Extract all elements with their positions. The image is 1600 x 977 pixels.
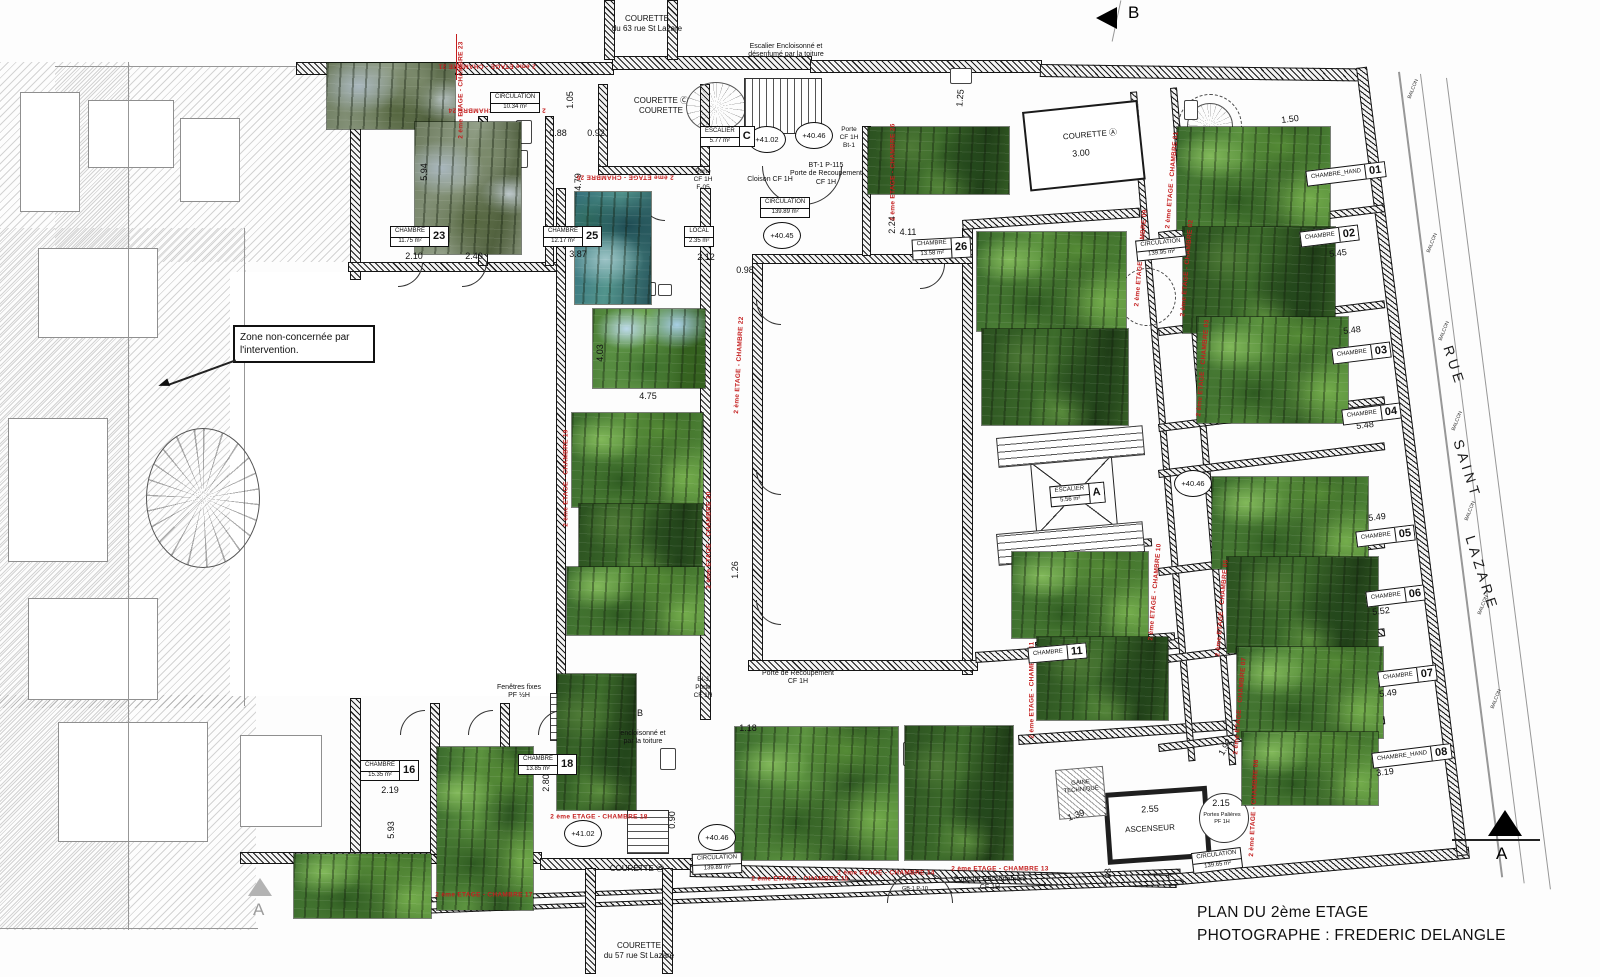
room-name: CIRCULATION bbox=[491, 93, 539, 103]
dimension-label: 5.93 bbox=[386, 821, 396, 839]
photo-caption: 2 ème ETAGE - CHAMBRE 21 bbox=[438, 63, 535, 70]
plan-label-line: Porte bbox=[694, 168, 713, 176]
section-arrow-b-icon bbox=[1096, 7, 1117, 29]
room-photo bbox=[327, 63, 455, 129]
room-photo bbox=[1212, 477, 1368, 569]
plan-label-line: Porte bbox=[694, 684, 713, 692]
room-photo bbox=[1012, 552, 1148, 638]
dimension-label: 2.80 bbox=[541, 774, 551, 792]
room-photo bbox=[593, 309, 705, 388]
dimension-label: 3.87 bbox=[569, 249, 587, 259]
room-name: ESCALIER bbox=[701, 127, 739, 137]
plan-label-line: CF 1H bbox=[694, 692, 713, 700]
plan-label-line: Porte de Recoupement bbox=[762, 670, 834, 678]
room-tag-text: CIRCULATION10.34 m² bbox=[491, 93, 539, 112]
room-tag-text: CIRCULATION139.89 m² bbox=[693, 853, 742, 873]
plan-label-line: Porte de Recoupement bbox=[790, 170, 862, 178]
plan-label-line: Porte de Recoupement bbox=[954, 876, 1026, 884]
room-tag-text: CHAMBRE15.35 m² bbox=[361, 761, 399, 780]
existing-room-outline bbox=[20, 92, 80, 212]
plan-label-line: COURETTE Ⓑ bbox=[610, 864, 664, 874]
room-name: LOCAL bbox=[685, 227, 713, 237]
level-marker: +40.45 bbox=[763, 222, 801, 249]
door-arc-icon bbox=[400, 710, 425, 735]
room-name: CHAMBRE_HAND bbox=[1307, 167, 1366, 184]
dimension-label: 2.12 bbox=[697, 252, 715, 262]
room-photo bbox=[982, 329, 1128, 425]
existing-building-line bbox=[0, 928, 258, 929]
room-photo bbox=[567, 567, 704, 635]
room-area: 139.89 m² bbox=[761, 208, 809, 217]
bathroom-fixture bbox=[1184, 100, 1198, 120]
plan-label: GB-1 P-10 bbox=[902, 886, 928, 893]
plan-label-line: COURETTE bbox=[612, 14, 682, 24]
wall-segment bbox=[348, 262, 564, 272]
room-tag: LOCAL2.35 m² bbox=[684, 226, 714, 247]
room-photo bbox=[1227, 557, 1378, 653]
room-name: CHAMBRE bbox=[519, 755, 557, 765]
room-tag-text: CHAMBRE bbox=[1342, 406, 1381, 425]
plan-label-line: Portes Palières bbox=[1203, 812, 1240, 819]
photo-caption: 2 ème ETAGE - CHAMBRE 20 bbox=[706, 491, 713, 588]
room-tag-text: CHAMBRE bbox=[1378, 668, 1417, 687]
plan-label-line: encloisonné et bbox=[620, 730, 665, 738]
room-number: 23 bbox=[429, 227, 448, 246]
street-name: RUE bbox=[1440, 344, 1468, 388]
plan-label-line: Escalier Encloisonné et bbox=[748, 43, 824, 51]
existing-room-outline bbox=[88, 100, 174, 168]
room-photo bbox=[575, 192, 651, 304]
dimension-label: 0.98 bbox=[736, 265, 754, 275]
existing-room-outline bbox=[38, 248, 158, 338]
existing-room-outline bbox=[240, 735, 322, 827]
room-photo bbox=[977, 232, 1126, 331]
plan-label-line: PF 1H bbox=[1203, 819, 1240, 826]
room-name: CHAMBRE bbox=[1343, 408, 1382, 422]
plan-label: Porte de RecoupementCF 1H bbox=[954, 876, 1026, 893]
existing-room-outline bbox=[8, 418, 108, 562]
room-tag-text: CHAMBRE bbox=[1332, 345, 1371, 364]
room-tag: CHAMBRE12.17 m²25 bbox=[543, 226, 602, 247]
room-tag: CHAMBRE11.75 m²23 bbox=[390, 226, 449, 247]
plan-label-line: PF ½H bbox=[497, 692, 541, 700]
room-number: 06 bbox=[1404, 586, 1425, 603]
corridor-circle bbox=[1118, 268, 1176, 326]
wall-segment bbox=[962, 208, 1140, 230]
room-tag-text: ESCALIER5.77 m² bbox=[701, 127, 739, 146]
plan-label-line: CF 1H bbox=[790, 179, 862, 187]
room-name: CHAMBRE bbox=[544, 227, 582, 237]
street-line bbox=[1446, 78, 1551, 889]
room-name: CHAMBRE bbox=[1357, 530, 1396, 544]
room-area: 2.35 m² bbox=[685, 237, 713, 246]
photo-caption: 2 ème ETAGE - CHAMBRE 10 bbox=[1147, 543, 1162, 641]
dimension-label: 1.03 bbox=[1103, 868, 1113, 886]
plan-label-line: CF 1H bbox=[840, 134, 859, 142]
room-number: 05 bbox=[1394, 526, 1415, 543]
room-number: 04 bbox=[1380, 404, 1401, 421]
plan-label-line: du 57 rue St Lazare bbox=[604, 951, 674, 961]
dimension-label: 5.48 bbox=[1343, 324, 1362, 336]
room-photo bbox=[579, 504, 702, 570]
room-number: 18 bbox=[557, 755, 576, 774]
plan-label-line: COURETTE Ⓒ bbox=[634, 96, 688, 106]
section-marker-a2: A bbox=[253, 900, 264, 920]
dimension-label: 1.50 bbox=[1281, 113, 1300, 125]
dimension-label: 4.03 bbox=[595, 344, 605, 362]
plan-label-line: CF 1H bbox=[762, 678, 834, 686]
room-tag: CHAMBRE_HAND08 bbox=[1371, 743, 1452, 769]
plan-label-line: GB-1 P-10 bbox=[902, 886, 928, 893]
bathroom-fixture bbox=[658, 284, 672, 296]
plan-label-line: COURETTE bbox=[634, 106, 688, 116]
room-tag: CIRCULATION139.89 m² bbox=[760, 197, 810, 218]
plan-label: encloisonné etpar la toiture bbox=[620, 730, 665, 747]
existing-room-outline bbox=[28, 598, 158, 700]
room-name: CHAMBRE bbox=[1379, 670, 1418, 684]
dimension-label: 5.94 bbox=[419, 163, 429, 181]
room-number: 11 bbox=[1066, 644, 1086, 660]
room-name: CHAMBRE bbox=[1029, 647, 1068, 660]
room-number: 02 bbox=[1338, 226, 1359, 243]
wall-segment bbox=[1040, 64, 1365, 82]
plan-label: GAINETECHNIQUE bbox=[1063, 778, 1099, 795]
room-tag-text: CHAMBRE_HAND bbox=[1372, 747, 1432, 768]
room-number: 01 bbox=[1364, 162, 1385, 179]
room-tag-text: CIRCULATION139.95 m² bbox=[1136, 237, 1186, 261]
plan-label-line: Porte bbox=[840, 126, 859, 134]
room-area: 13.58 m² bbox=[913, 248, 951, 259]
plan-label: PorteCF 1HBt-1 bbox=[840, 126, 859, 149]
plan-label: Escalier Encloisonné etdésenfumé par la … bbox=[748, 43, 824, 60]
section-marker-b: B bbox=[1128, 3, 1139, 23]
room-tag-text: CHAMBRE bbox=[1356, 528, 1395, 547]
wall-segment bbox=[962, 228, 973, 675]
room-area: 15.35 m² bbox=[361, 771, 399, 780]
plan-label: COURETTE ⒸCOURETTE bbox=[634, 96, 688, 115]
photo-caption: 2 ème ETAGE - CHAMBRE 15 bbox=[751, 876, 848, 883]
plan-label-line: désenfumé par la toiture bbox=[748, 51, 824, 59]
balcony-label: BALCON bbox=[1438, 320, 1451, 341]
floor-plan: Zone non-concernée par l'intervention. B… bbox=[0, 0, 1600, 977]
room-number: 25 bbox=[582, 227, 601, 246]
level-marker: +40.46 bbox=[795, 122, 833, 149]
door-arc-icon bbox=[468, 710, 493, 735]
dimension-label: 5.49 bbox=[1368, 511, 1387, 523]
existing-room-outline bbox=[58, 722, 208, 842]
plan-label: Portes PalièresPF 1H bbox=[1203, 812, 1240, 825]
room-photo bbox=[735, 727, 898, 860]
plan-label-line: par la toiture bbox=[620, 738, 665, 746]
courette-a-outline bbox=[1022, 100, 1146, 192]
dimension-label: 4.11 bbox=[900, 227, 917, 237]
section-line-a bbox=[1452, 839, 1540, 841]
plan-label-line: F-05 bbox=[694, 184, 713, 192]
room-tag: CIRCULATION139.95 m² bbox=[1135, 235, 1187, 261]
room-number: 16 bbox=[399, 761, 418, 780]
plan-label: COURETTEdu 63 rue St Lazare bbox=[612, 14, 682, 33]
room-name: CHAMBRE_HAND bbox=[1373, 749, 1432, 766]
room-tag: CHAMBRE15.35 m²16 bbox=[360, 760, 419, 781]
room-photo bbox=[905, 726, 1013, 860]
dimension-label: 1.18 bbox=[739, 723, 757, 733]
plan-label: Fenêtres fixesPF ½H bbox=[497, 684, 541, 701]
room-tag: CHAMBRE07 bbox=[1377, 664, 1438, 687]
plan-label-line: du 63 rue St Lazare bbox=[612, 24, 682, 34]
photographer-credit: PHOTOGRAPHE : FREDERIC DELANGLE bbox=[1197, 924, 1506, 947]
room-name: CHAMBRE bbox=[1367, 590, 1406, 604]
wall-segment bbox=[585, 868, 596, 974]
room-number: 07 bbox=[1416, 666, 1437, 683]
dimension-label: 2.55 bbox=[1141, 804, 1159, 815]
stair-a-steps bbox=[996, 425, 1145, 468]
room-name: CHAMBRE bbox=[361, 761, 399, 771]
dimension-label: 2.10 bbox=[405, 251, 423, 261]
dimension-label: 2.40 bbox=[465, 251, 483, 261]
existing-spiral-stair bbox=[146, 428, 260, 568]
plan-label: Porte de RecoupementCF 1H bbox=[762, 670, 834, 687]
room-tag-text: CIRCULATION139.89 m² bbox=[761, 198, 809, 217]
dimension-label: 0.88 bbox=[549, 128, 567, 138]
balcony-label: BALCON bbox=[1464, 500, 1477, 521]
room-tag: ESCALIER5.77 m²C bbox=[700, 126, 755, 147]
plan-label-line: CF 1H bbox=[954, 884, 1026, 892]
plan-label: PorteCF 1HF-05 bbox=[694, 168, 713, 191]
room-tag: CIRCULATION139.89 m² bbox=[692, 852, 743, 874]
room-photo bbox=[1237, 647, 1383, 738]
dimension-label: 5.49 bbox=[1379, 687, 1398, 699]
room-name: CHAMBRE bbox=[1301, 230, 1340, 244]
room-area: 5.77 m² bbox=[701, 137, 739, 146]
room-number: 08 bbox=[1430, 744, 1451, 761]
plan-label: BT-1 P-115Porte de RecoupementCF 1H bbox=[790, 162, 862, 187]
plan-label-line: COURETTE bbox=[604, 941, 674, 951]
photo-caption: 2 ème ETAGE - CHAMBRE 14 bbox=[837, 870, 934, 877]
plan-label-line: Cloison CF 1H bbox=[747, 176, 793, 184]
level-marker: +41.02 bbox=[564, 820, 602, 847]
plan-label: COURETTE Ⓑ bbox=[610, 864, 664, 874]
room-number: C bbox=[739, 127, 754, 146]
room-tag-text: CHAMBRE bbox=[1028, 645, 1067, 663]
room-area: 11.75 m² bbox=[391, 237, 429, 246]
level-marker: +40.46 bbox=[1174, 470, 1212, 497]
room-photo bbox=[294, 854, 431, 918]
room-name: CIRCULATION bbox=[761, 198, 809, 208]
dimension-label: 0.92 bbox=[587, 128, 605, 138]
room-area: 12.17 m² bbox=[544, 237, 582, 246]
photo-caption: 2 ème ETAGE - CHAMBRE 13 bbox=[951, 866, 1048, 873]
room-tag-text: LOCAL2.35 m² bbox=[685, 227, 713, 246]
room-area: 13.85 m² bbox=[519, 765, 557, 774]
plan-label: B bbox=[637, 708, 643, 719]
room-area: 5.56 m² bbox=[1051, 494, 1089, 506]
room-area: 10.34 m² bbox=[491, 103, 539, 112]
room-number: A bbox=[1088, 483, 1105, 503]
bathroom-fixture bbox=[950, 68, 972, 84]
room-area: 139.89 m² bbox=[693, 863, 742, 873]
room-tag-text: CHAMBRE12.17 m² bbox=[544, 227, 582, 246]
dimension-label: 0.90 bbox=[667, 811, 677, 829]
section-arrow-a2-icon bbox=[248, 878, 272, 896]
photo-caption: 2 ème ETAGE - CHAMBRE 19 bbox=[563, 429, 570, 526]
room-tag-text: CHAMBRE11.75 m² bbox=[391, 227, 429, 246]
room-tag: CHAMBRE13.58 m²26 bbox=[912, 236, 972, 260]
existing-room-outline bbox=[180, 118, 240, 202]
wall-segment bbox=[598, 84, 608, 170]
existing-building-line bbox=[128, 62, 129, 930]
room-number: 26 bbox=[951, 238, 971, 258]
room-photo bbox=[1197, 317, 1348, 423]
dimension-label: 2.15 bbox=[1212, 798, 1230, 808]
balcony-label: BALCON bbox=[1407, 78, 1420, 99]
level-marker: +40.46 bbox=[698, 824, 736, 851]
street-name: LAZARE bbox=[1462, 534, 1501, 614]
room-number: 03 bbox=[1370, 343, 1391, 360]
room-photo bbox=[1242, 732, 1378, 805]
plan-label-line: BT-1 P-115 bbox=[790, 162, 862, 170]
plan-label: COURETTEdu 57 rue St Lazare bbox=[604, 941, 674, 960]
title-block: PLAN DU 2ème ETAGE PHOTOGRAPHE : FREDERI… bbox=[1197, 901, 1506, 948]
dimension-label: 2.19 bbox=[381, 785, 399, 795]
zone-note-text: Zone non-concernée par l'intervention. bbox=[240, 332, 350, 356]
street-name: SAINT bbox=[1450, 438, 1484, 501]
zone-note-box: Zone non-concernée par l'intervention. bbox=[233, 325, 375, 363]
photo-caption: 2 ème ETAGE - CHAMBRE 18 bbox=[550, 814, 647, 821]
plan-label-line: B bbox=[637, 708, 643, 719]
room-name: CHAMBRE bbox=[391, 227, 429, 237]
plan-label-line: Bt-1 bbox=[840, 142, 859, 150]
room-tag: CIRCULATION10.34 m² bbox=[490, 92, 540, 113]
wall-segment bbox=[810, 60, 1042, 73]
dimension-label: 1.05 bbox=[565, 91, 575, 109]
photo-caption: 2 ème ETAGE - CHAMBRE 23 bbox=[458, 41, 465, 138]
room-name: CHAMBRE bbox=[1333, 347, 1372, 361]
room-tag-text: CHAMBRE13.85 m² bbox=[519, 755, 557, 774]
photo-caption: 2 ème ETAGE - CHAMBRE 17 bbox=[435, 892, 532, 899]
photo-caption: 2 ème ETAGE - CHAMBRE 26 bbox=[890, 123, 897, 220]
door-arc-icon bbox=[920, 264, 945, 289]
plan-label-line: BI-J bbox=[694, 676, 713, 684]
bathroom-fixture bbox=[660, 748, 676, 770]
section-arrow-a-icon bbox=[1488, 810, 1522, 836]
dimension-label: 1.26 bbox=[730, 561, 740, 579]
balcony-label: BALCON bbox=[1451, 410, 1464, 431]
room-tag-text: ESCALIER5.56 m² bbox=[1050, 484, 1089, 506]
section-marker-a: A bbox=[1496, 844, 1507, 864]
room-photo bbox=[572, 413, 703, 507]
plan-label: Cloison CF 1H bbox=[747, 176, 793, 184]
stair-c-fan bbox=[686, 82, 746, 132]
dimension-label: 1.25 bbox=[954, 89, 965, 107]
photo-caption: 2 ème ETAGE - CHAMBRE 25 bbox=[576, 174, 673, 181]
room-tag: CHAMBRE13.85 m²18 bbox=[518, 754, 577, 775]
room-tag-text: CHAMBRE bbox=[1366, 588, 1405, 607]
dimension-label: 5.45 bbox=[1329, 247, 1348, 259]
plan-label-line: CF 1H bbox=[694, 176, 713, 184]
dimension-label: 4.75 bbox=[639, 391, 657, 401]
dimension-label: 3.00 bbox=[1072, 147, 1090, 158]
plan-title: PLAN DU 2ème ETAGE bbox=[1197, 901, 1506, 924]
balcony-label: BALCON bbox=[1426, 232, 1439, 253]
plan-label: BI-JPorteCF 1H bbox=[694, 676, 713, 699]
photo-caption: 2 ème ETAGE - CHAMBRE 22 bbox=[733, 316, 745, 414]
room-tag-text: CHAMBRE13.58 m² bbox=[913, 239, 952, 260]
